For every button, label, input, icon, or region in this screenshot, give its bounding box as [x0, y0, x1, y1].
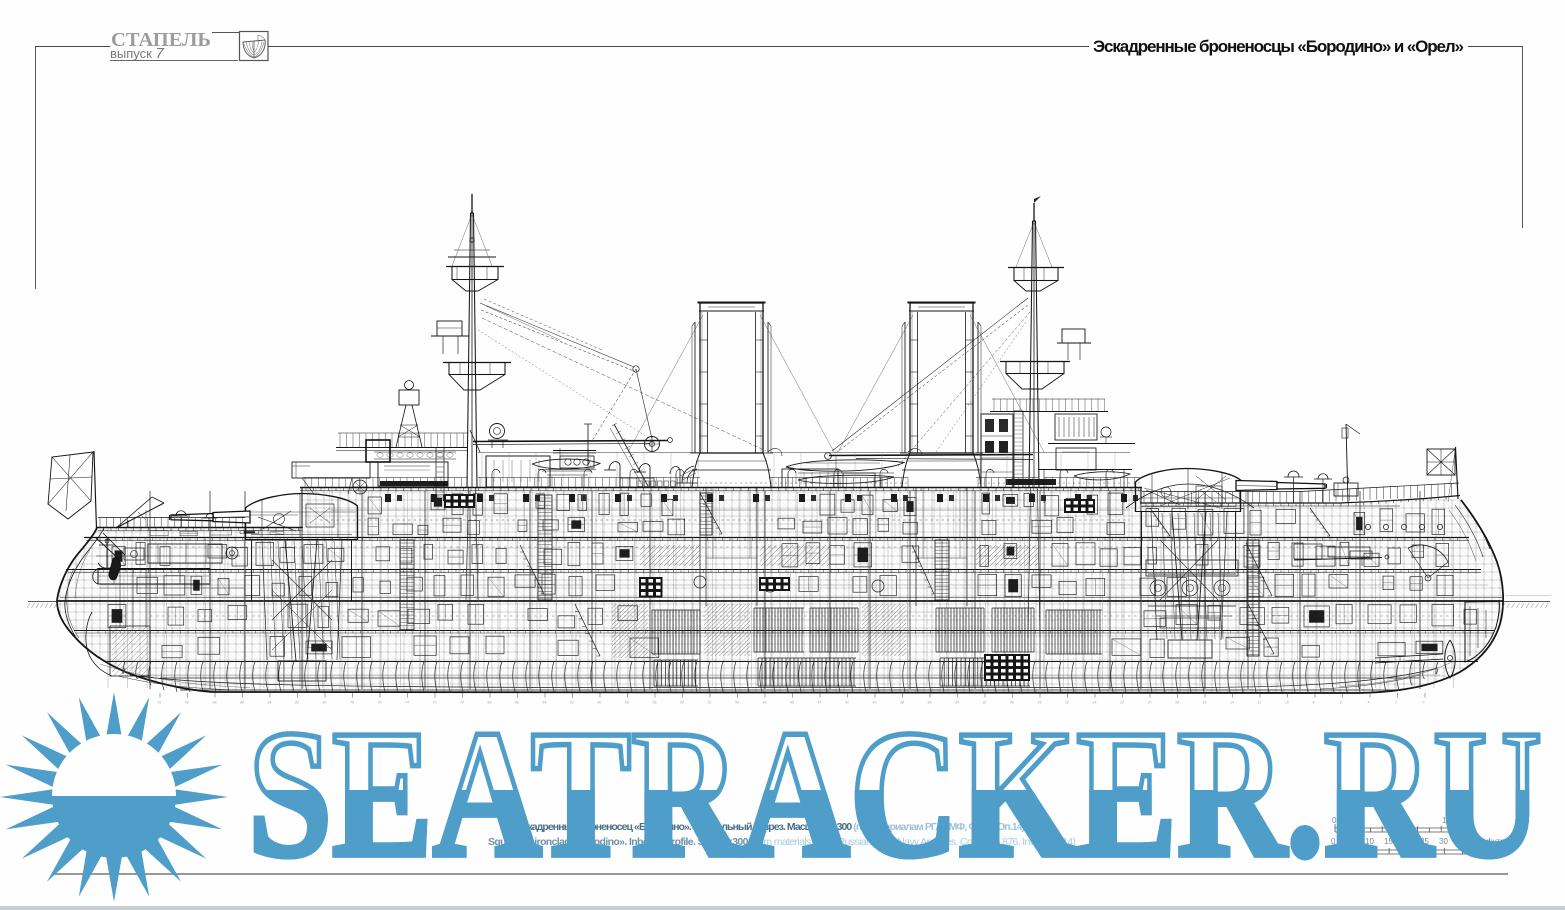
svg-text:92: 92: [158, 701, 162, 705]
svg-text:88: 88: [213, 701, 217, 705]
svg-text:90: 90: [185, 701, 189, 705]
svg-text:выпуск 7: выпуск 7: [110, 45, 164, 62]
svg-text:Эскадренные броненосцы «Бороди: Эскадренные броненосцы «Бородино» и «Оре…: [1093, 37, 1464, 56]
svg-text:86: 86: [240, 701, 244, 705]
